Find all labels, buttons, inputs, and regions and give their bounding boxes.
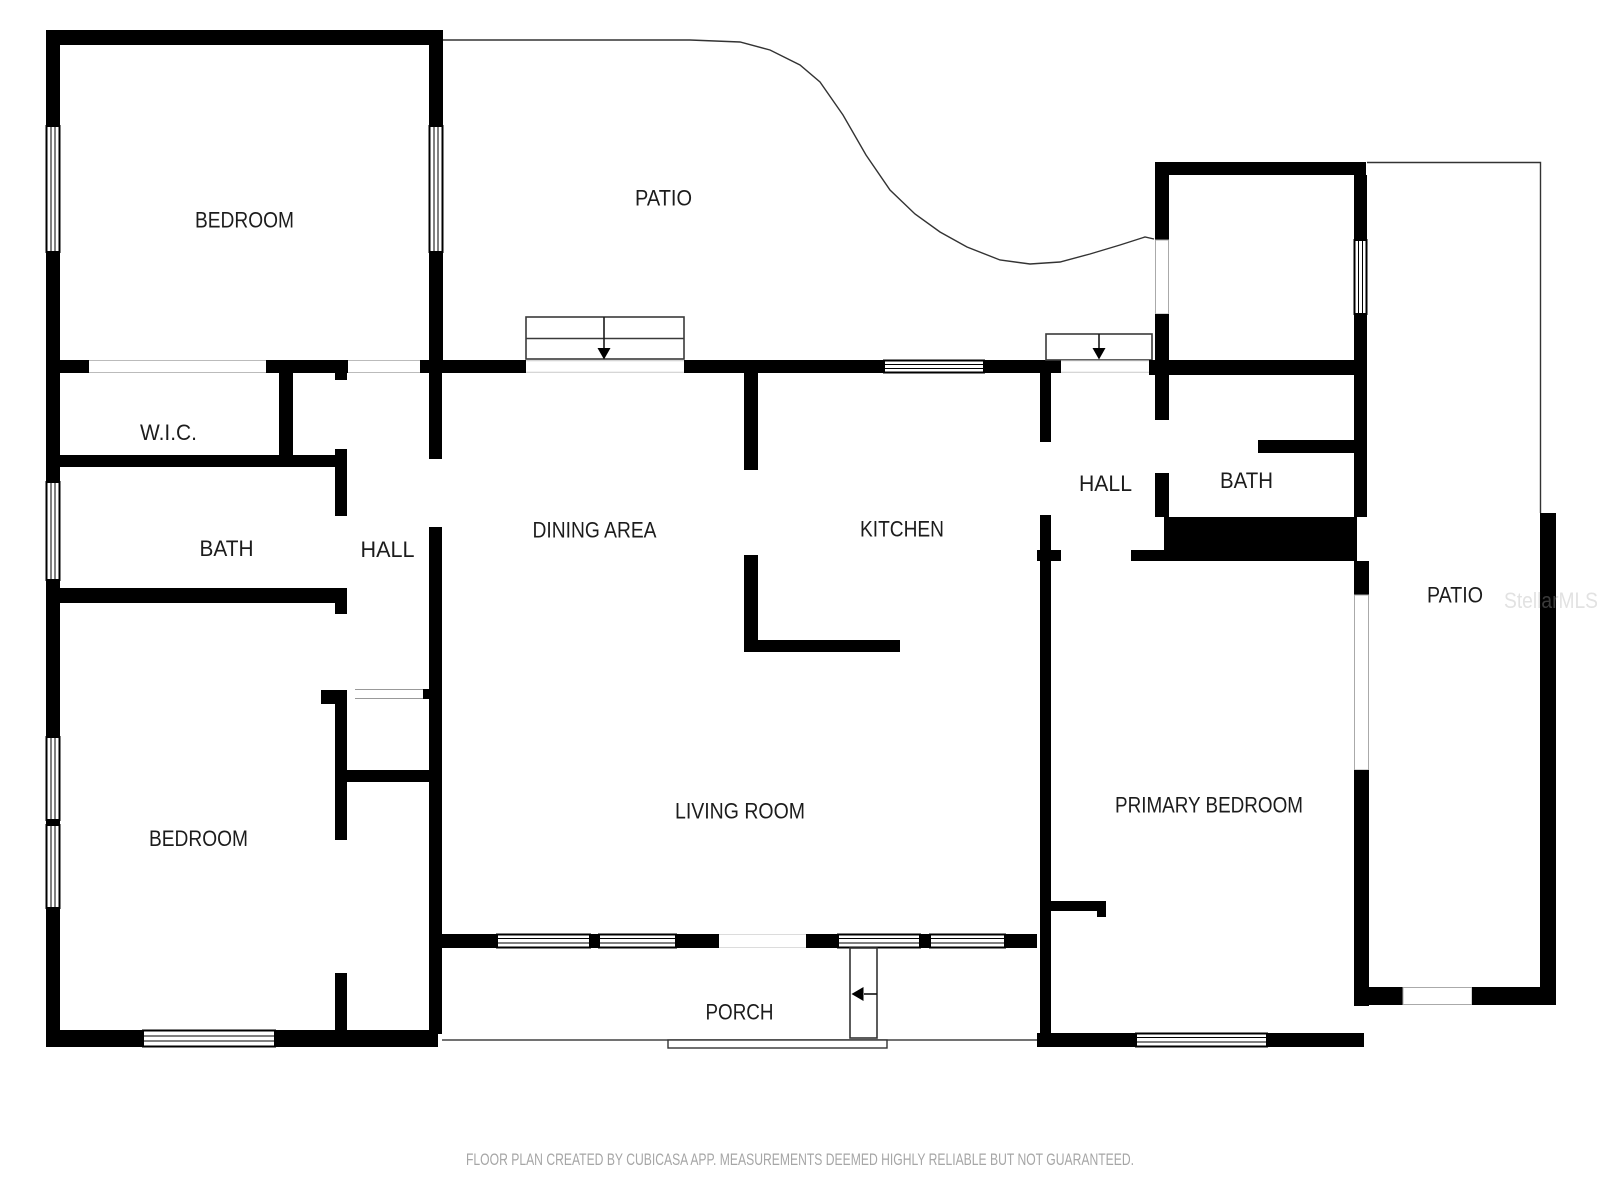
svg-text:BEDROOM: BEDROOM [195,208,294,233]
svg-text:FLOOR PLAN CREATED BY CUBICASA: FLOOR PLAN CREATED BY CUBICASA APP. MEAS… [466,1150,1134,1169]
svg-text:DINING AREA: DINING AREA [533,518,657,543]
svg-text:BATH: BATH [200,536,254,561]
svg-text:PATIO: PATIO [1427,583,1483,608]
svg-text:StellarMLS: StellarMLS [1504,588,1598,613]
svg-text:PATIO: PATIO [635,186,692,211]
svg-text:W.I.C.: W.I.C. [140,420,197,445]
svg-text:KITCHEN: KITCHEN [860,517,944,542]
svg-text:LIVING ROOM: LIVING ROOM [675,799,805,824]
svg-text:HALL: HALL [1079,471,1132,496]
svg-text:PRIMARY BEDROOM: PRIMARY BEDROOM [1115,793,1303,818]
svg-text:BATH: BATH [1220,468,1273,493]
svg-text:PORCH: PORCH [706,1000,774,1025]
svg-text:HALL: HALL [361,537,415,562]
svg-text:BEDROOM: BEDROOM [149,826,248,851]
